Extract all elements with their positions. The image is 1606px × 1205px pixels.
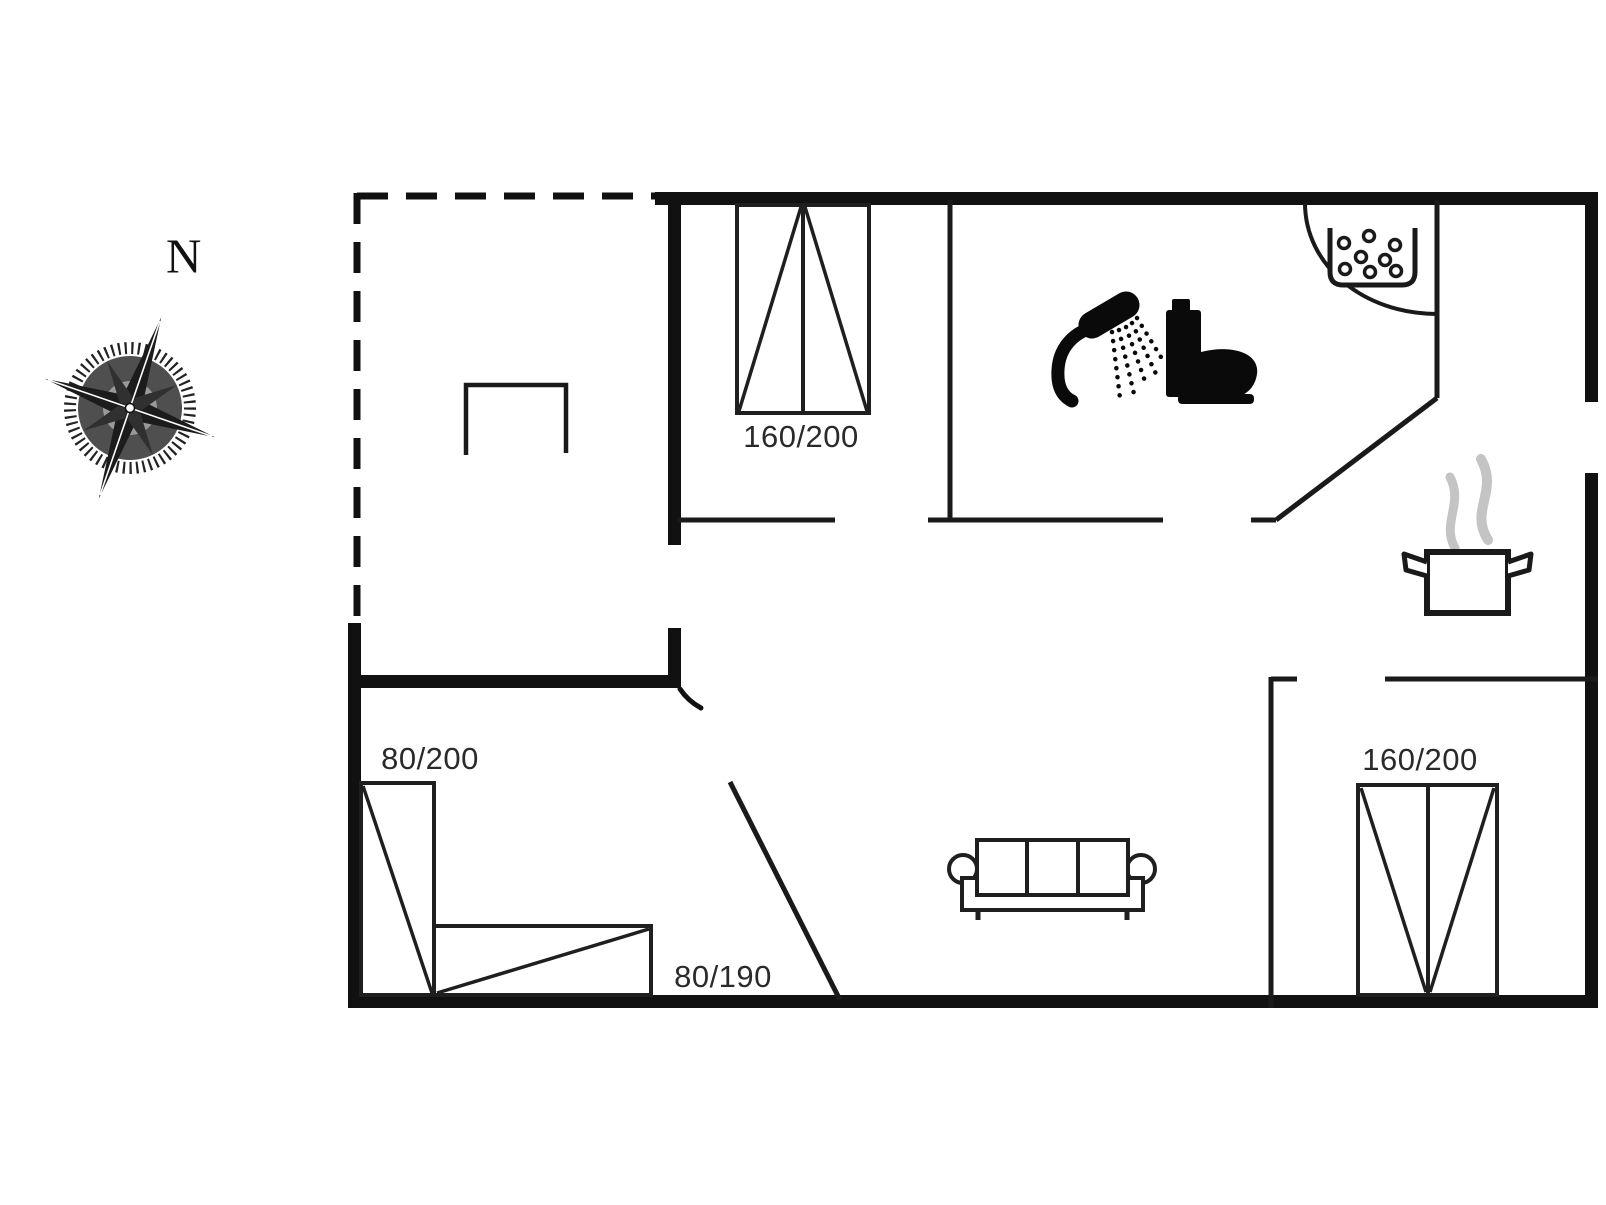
shower-icon — [1058, 305, 1164, 401]
toilet-bowl — [1201, 349, 1257, 399]
bathroom-angled-wall — [1276, 398, 1437, 520]
shower-spray — [1112, 318, 1164, 398]
bedroom2-wall-top — [348, 675, 681, 688]
pot-handle-right — [1508, 554, 1531, 576]
steaming-pot-icon — [1404, 459, 1531, 613]
floor-plan: N 160/200 80/200 80/190 160/200 — [0, 0, 1606, 1205]
double-bed-top — [737, 205, 869, 413]
bubble-basin-icon — [1330, 228, 1415, 285]
toilet-icon — [1166, 299, 1257, 404]
hall-wall-vertical-upper — [668, 192, 681, 545]
bed-size-label-left: 80/200 — [381, 741, 479, 777]
toilet-base — [1178, 394, 1254, 404]
compass-rose-icon — [14, 288, 247, 528]
single-bed-left — [361, 783, 434, 995]
toilet-cistern — [1166, 310, 1201, 397]
pot-body — [1427, 552, 1508, 613]
bedroom2-door-tick — [680, 689, 701, 708]
pot-handle-left — [1404, 554, 1427, 576]
single-bed-bottom — [434, 926, 651, 995]
table-icon — [466, 385, 566, 455]
steam-wisp-left — [1450, 477, 1455, 548]
outer-wall-right-lower — [1585, 473, 1598, 1008]
sofa-back — [977, 840, 1128, 895]
bed-size-label-top: 160/200 — [743, 419, 859, 455]
steam-wisp-right — [1481, 459, 1488, 540]
bed-size-label-right: 160/200 — [1362, 742, 1478, 778]
double-bed-right — [1358, 785, 1497, 995]
north-label: N — [166, 228, 202, 285]
outer-wall-right-upper — [1585, 192, 1598, 402]
bed-size-label-bottom: 80/190 — [674, 959, 772, 995]
shower-hose — [1058, 327, 1094, 401]
floor-plan-drawing — [0, 0, 1606, 1205]
sofa-icon — [949, 840, 1155, 920]
